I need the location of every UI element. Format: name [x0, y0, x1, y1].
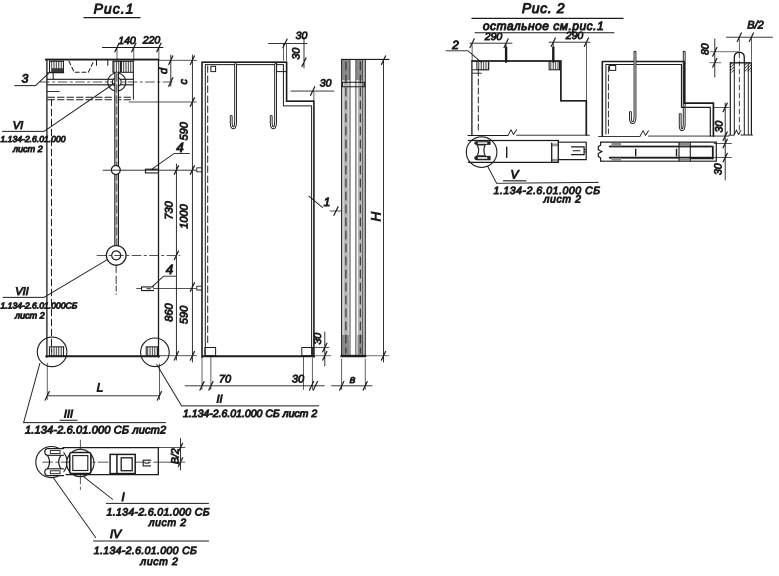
svg-text:1.134-2.6.01.000: 1.134-2.6.01.000: [1, 134, 66, 144]
svg-text:140: 140: [118, 35, 136, 47]
svg-text:860: 860: [163, 303, 175, 322]
svg-text:1.134-2.6.01.000 СБ лист2: 1.134-2.6.01.000 СБ лист2: [25, 424, 166, 436]
svg-text:3: 3: [22, 72, 29, 86]
svg-text:4: 4: [176, 140, 184, 155]
svg-text:В/2: В/2: [170, 448, 182, 464]
svg-text:220: 220: [142, 35, 161, 47]
svg-text:лист 2: лист 2: [14, 311, 45, 321]
svg-text:290: 290: [484, 31, 503, 43]
svg-text:290: 290: [565, 30, 584, 42]
svg-text:2: 2: [451, 38, 459, 52]
svg-text:Рис. 2: Рис. 2: [522, 0, 565, 16]
svg-text:лист 2: лист 2: [543, 194, 582, 206]
svg-text:III: III: [64, 409, 73, 421]
svg-text:Рис.1: Рис.1: [94, 1, 135, 17]
svg-text:лист 2: лист 2: [139, 556, 178, 568]
svg-text:80: 80: [700, 43, 712, 55]
svg-text:II: II: [216, 394, 222, 406]
svg-text:70: 70: [219, 374, 232, 386]
svg-text:30: 30: [292, 374, 305, 386]
svg-text:d: d: [158, 67, 170, 74]
svg-text:L: L: [97, 381, 104, 395]
svg-text:30: 30: [320, 77, 332, 89]
svg-text:1.134-2.6.01.000СБ: 1.134-2.6.01.000СБ: [1, 301, 78, 311]
svg-text:V: V: [510, 168, 519, 182]
svg-text:лист 2: лист 2: [148, 517, 187, 529]
svg-text:1.134-2.6.01.000 СБ лист 2: 1.134-2.6.01.000 СБ лист 2: [183, 408, 317, 420]
svg-text:1: 1: [324, 195, 331, 209]
svg-text:VII: VII: [15, 286, 28, 298]
svg-text:590: 590: [178, 305, 190, 324]
svg-text:лист 2: лист 2: [12, 144, 43, 154]
svg-text:с: с: [178, 78, 190, 84]
svg-text:В/2: В/2: [747, 20, 764, 32]
svg-text:30: 30: [712, 163, 724, 175]
svg-text:VI: VI: [13, 120, 23, 132]
svg-text:в: в: [350, 374, 356, 386]
svg-text:30: 30: [296, 30, 308, 42]
svg-text:Н: Н: [369, 211, 384, 221]
svg-text:4: 4: [166, 262, 174, 277]
svg-text:730: 730: [163, 200, 175, 219]
svg-text:1000: 1000: [178, 203, 190, 228]
svg-text:590: 590: [178, 121, 190, 140]
svg-text:IV: IV: [110, 527, 122, 541]
svg-text:30: 30: [312, 333, 324, 345]
svg-text:I: I: [121, 490, 125, 504]
svg-text:30: 30: [290, 48, 302, 60]
svg-text:30: 30: [713, 121, 725, 133]
